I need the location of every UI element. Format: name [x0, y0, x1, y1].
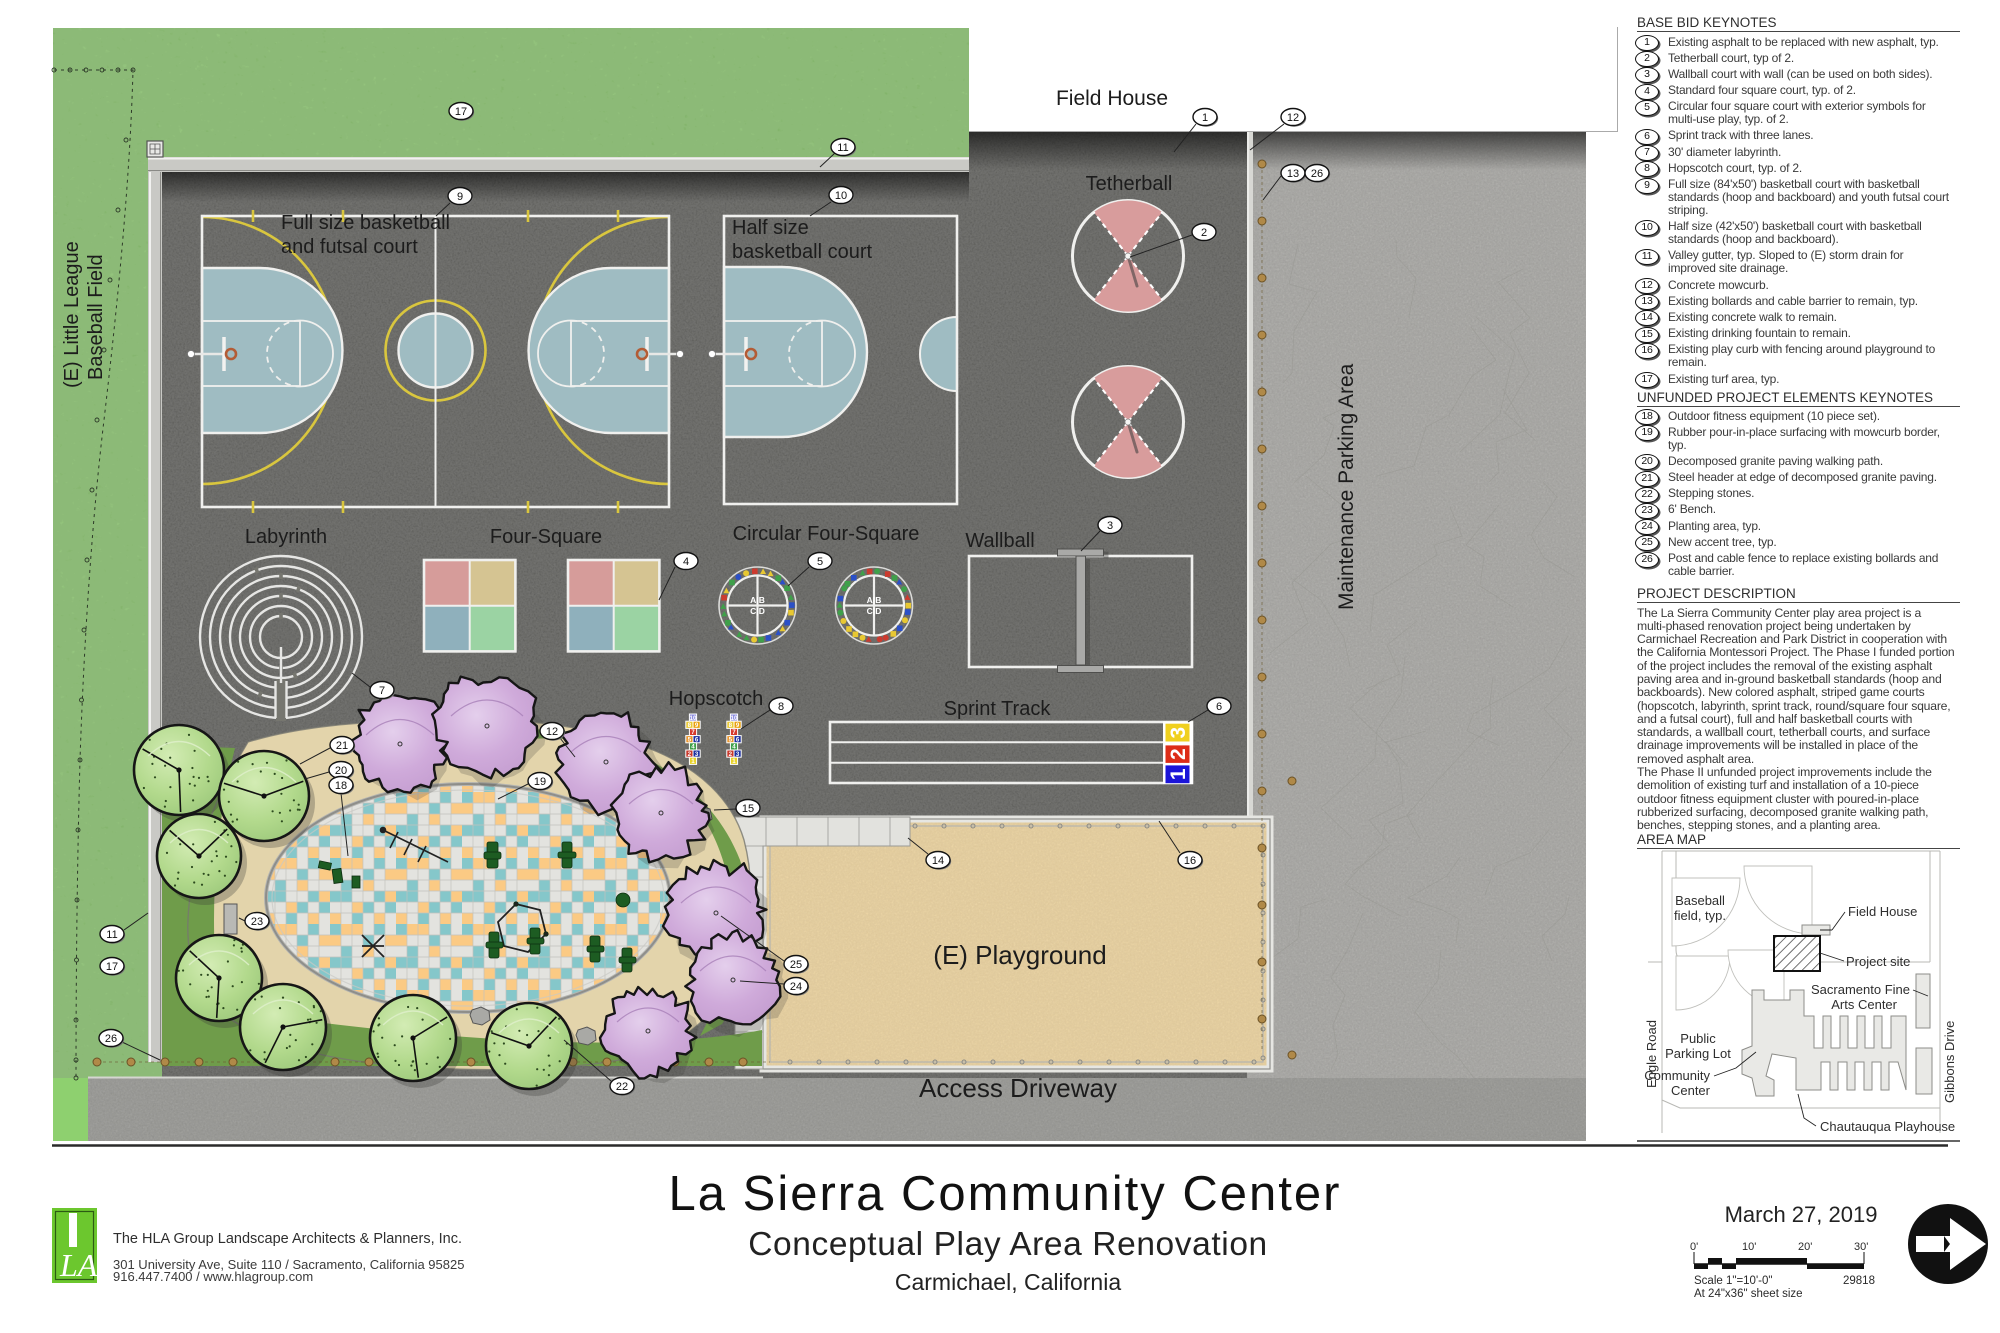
svg-text:field, typ.: field, typ.	[1674, 908, 1726, 923]
svg-text:Field House: Field House	[1848, 904, 1917, 919]
svg-text:LA: LA	[59, 1247, 98, 1283]
svg-text:26: 26	[105, 1033, 117, 1045]
svg-text:Center: Center	[1671, 1083, 1711, 1098]
svg-text:C|D: C|D	[867, 606, 882, 616]
svg-text:Sacramento Fine: Sacramento Fine	[1811, 982, 1910, 997]
svg-text:9: 9	[457, 191, 463, 203]
svg-text:Circular Four-Square: Circular Four-Square	[733, 523, 920, 545]
svg-text:Baseball: Baseball	[1675, 893, 1725, 908]
svg-text:1: 1	[1167, 768, 1190, 780]
svg-text:12: 12	[546, 726, 558, 738]
svg-text:2: 2	[1201, 227, 1207, 239]
svg-text:C|D: C|D	[750, 606, 765, 616]
svg-text:7: 7	[379, 685, 385, 697]
svg-text:Access Driveway: Access Driveway	[919, 1073, 1117, 1103]
svg-text:Parking Lot: Parking Lot	[1665, 1046, 1731, 1061]
svg-text:23: 23	[251, 916, 263, 928]
svg-text:8: 8	[778, 701, 784, 713]
svg-text:Labyrinth: Labyrinth	[245, 526, 327, 548]
svg-text:11: 11	[106, 929, 117, 941]
svg-text:15: 15	[742, 803, 754, 815]
svg-text:18: 18	[335, 780, 347, 792]
svg-text:26: 26	[1311, 168, 1323, 180]
svg-text:March 27, 2019: March 27, 2019	[1725, 1202, 1878, 1227]
svg-text:19: 19	[534, 776, 546, 788]
svg-text:Half size: Half size	[732, 217, 809, 239]
svg-text:21: 21	[336, 740, 348, 752]
svg-text:1: 1	[691, 758, 695, 765]
svg-text:30': 30'	[1854, 1241, 1868, 1253]
svg-text:14: 14	[932, 855, 944, 867]
svg-text:25: 25	[790, 959, 802, 971]
svg-text:29818: 29818	[1843, 1275, 1875, 1287]
svg-text:Scale 1"=10'-0": Scale 1"=10'-0"	[1694, 1275, 1772, 1287]
svg-text:Chautauqua Playhouse: Chautauqua Playhouse	[1820, 1119, 1955, 1134]
svg-text:Full size basketball: Full size basketball	[281, 212, 450, 234]
svg-text:17: 17	[106, 961, 118, 973]
svg-text:A|B: A|B	[867, 595, 882, 605]
svg-text:Wallball: Wallball	[965, 530, 1034, 552]
svg-text:The HLA Group Landscape Archit: The HLA Group Landscape Architects & Pla…	[113, 1231, 462, 1247]
svg-text:5: 5	[817, 556, 823, 568]
svg-text:11: 11	[837, 142, 848, 154]
svg-text:3: 3	[1167, 727, 1190, 739]
svg-text:Project site: Project site	[1846, 954, 1910, 969]
svg-text:10': 10'	[1742, 1241, 1756, 1253]
svg-text:3: 3	[1107, 520, 1113, 532]
svg-text:and futsal court: and futsal court	[281, 236, 418, 258]
svg-text:Tetherball: Tetherball	[1086, 173, 1173, 195]
svg-text:Conceptual Play Area Renovatio: Conceptual Play Area Renovation	[748, 1226, 1268, 1263]
svg-text:La Sierra Community Center: La Sierra Community Center	[669, 1167, 1342, 1221]
svg-text:10: 10	[835, 190, 847, 202]
svg-text:Hopscotch: Hopscotch	[669, 688, 764, 710]
svg-text:916.447.7400 / www.hlagroup.co: 916.447.7400 / www.hlagroup.com	[113, 1269, 313, 1284]
svg-text:2: 2	[1167, 748, 1190, 760]
svg-text:12: 12	[1287, 112, 1299, 124]
svg-text:(E) Playground: (E) Playground	[933, 940, 1106, 970]
svg-text:4: 4	[683, 556, 689, 568]
svg-text:basketball court: basketball court	[732, 241, 873, 263]
svg-text:At 24"x36" sheet size: At 24"x36" sheet size	[1694, 1288, 1803, 1300]
svg-text:Public: Public	[1680, 1031, 1716, 1046]
svg-text:Field House: Field House	[1056, 87, 1168, 110]
svg-text:Four-Square: Four-Square	[490, 526, 602, 548]
svg-text:24: 24	[790, 981, 802, 993]
svg-text:Arts Center: Arts Center	[1831, 997, 1897, 1012]
svg-text:(E) Little League: (E) Little League	[61, 241, 83, 388]
svg-text:Maintenance Parking Area: Maintenance Parking Area	[1335, 363, 1358, 610]
svg-text:0': 0'	[1690, 1241, 1698, 1253]
svg-text:17: 17	[455, 106, 467, 118]
svg-text:22: 22	[616, 1081, 628, 1093]
svg-text:1: 1	[732, 758, 736, 765]
svg-text:20: 20	[335, 765, 347, 777]
svg-text:Sprint Track: Sprint Track	[944, 698, 1052, 720]
svg-text:Baseball Field: Baseball Field	[85, 254, 107, 380]
svg-text:16: 16	[1184, 855, 1196, 867]
svg-text:1: 1	[1202, 112, 1208, 124]
svg-text:Gibbons Drive: Gibbons Drive	[1942, 1021, 1957, 1103]
svg-text:Engle Road: Engle Road	[1644, 1020, 1659, 1088]
svg-text:13: 13	[1287, 168, 1299, 180]
svg-text:20': 20'	[1798, 1241, 1812, 1253]
svg-text:Carmichael, California: Carmichael, California	[895, 1269, 1121, 1295]
svg-text:6: 6	[1216, 701, 1222, 713]
svg-text:A|B: A|B	[750, 595, 765, 605]
